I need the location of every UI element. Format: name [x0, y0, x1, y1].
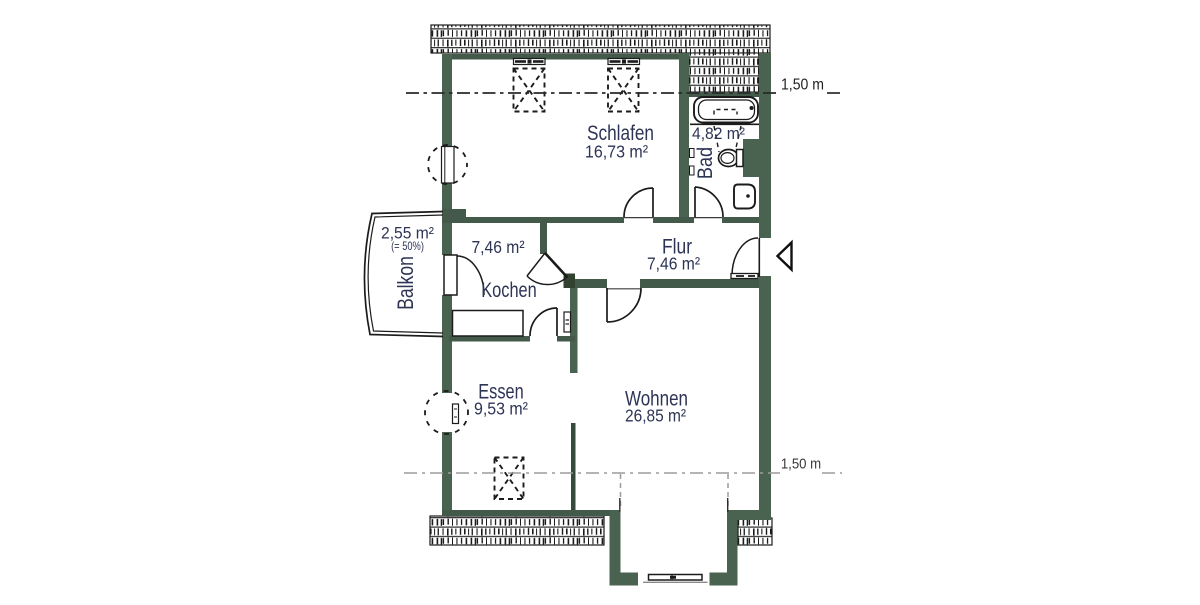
svg-text:7,46 m²: 7,46 m²	[647, 253, 700, 273]
svg-text:2,55 m²: 2,55 m²	[381, 224, 435, 243]
svg-text:4,82 m²: 4,82 m²	[692, 124, 746, 143]
svg-text:7,46 m²: 7,46 m²	[471, 237, 524, 257]
svg-text:Kochen: Kochen	[481, 278, 537, 301]
svg-text:1,50 m: 1,50 m	[781, 76, 824, 94]
svg-text:1,50 m: 1,50 m	[781, 455, 821, 472]
svg-text:16,73 m²: 16,73 m²	[585, 142, 648, 162]
svg-text:Balkon: Balkon	[394, 256, 418, 310]
svg-text:Bad: Bad	[694, 147, 718, 179]
svg-text:26,85 m²: 26,85 m²	[625, 405, 686, 425]
svg-text:9,53 m²: 9,53 m²	[474, 399, 528, 419]
svg-text:(= 50%): (= 50%)	[391, 241, 424, 253]
